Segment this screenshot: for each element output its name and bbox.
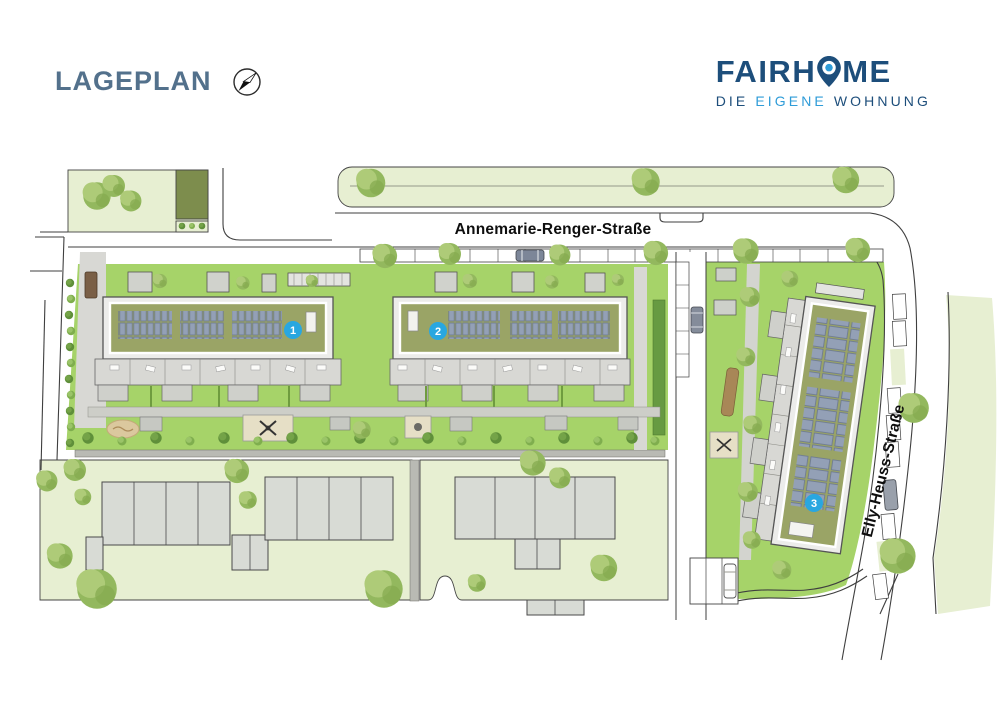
walkway	[88, 407, 660, 417]
brand-name: FAIRH ME	[716, 56, 931, 89]
building-2-number: 2	[435, 326, 441, 338]
building-1-number: 1	[290, 325, 296, 337]
parked-car-brown	[85, 272, 97, 298]
tagline-word-3: WOHNUNG	[834, 93, 931, 109]
shed	[207, 272, 229, 292]
solar-panels	[118, 311, 172, 339]
page: LAGEPLAN FAIRH ME DIE EIGENE WOHNUNG	[0, 0, 1000, 702]
seating-patio-2	[710, 432, 738, 458]
building-3-number: 3	[811, 498, 817, 510]
street-label-annemarie: Annemarie-Renger-Straße	[455, 221, 652, 238]
seating-patio	[243, 415, 293, 441]
building-3-badge[interactable]: 3	[805, 494, 823, 512]
header: LAGEPLAN	[55, 66, 262, 97]
building-1-badge[interactable]: 1	[284, 321, 302, 339]
shed	[128, 272, 152, 292]
solar-panels	[180, 311, 224, 339]
tagline-word-1: DIE	[716, 93, 749, 109]
brand-part1: FAIRH	[716, 56, 817, 89]
street-parking-row	[360, 249, 883, 262]
compass-icon	[232, 67, 262, 97]
parked-car-white	[724, 564, 736, 598]
street-north-curb-west	[223, 168, 332, 240]
solar-panels	[510, 311, 552, 339]
skylight	[408, 311, 418, 331]
shed	[512, 272, 534, 292]
parked-car	[516, 250, 544, 261]
solar-panels	[809, 317, 861, 383]
solar-panels	[232, 311, 282, 339]
playground-sand	[107, 420, 139, 438]
brand-part2: ME	[842, 56, 892, 89]
solar-panels	[799, 387, 851, 453]
building-2-badge[interactable]: 2	[429, 322, 447, 340]
brand-tagline: DIE EIGENE WOHNUNG	[716, 93, 931, 109]
shed	[585, 273, 605, 292]
bus-bay	[660, 213, 703, 222]
location-pin-icon	[817, 56, 841, 87]
bike-rack	[288, 273, 350, 286]
shed	[262, 274, 276, 292]
page-title: LAGEPLAN	[55, 66, 212, 97]
shed	[435, 272, 457, 292]
skylight	[306, 312, 316, 332]
brand-logo: FAIRH ME DIE EIGENE WOHNUNG	[716, 56, 931, 109]
parked-car-vertical	[691, 307, 703, 333]
west-street-line2	[41, 300, 45, 470]
building-2-terraces	[390, 359, 630, 385]
building-1-terraces	[95, 359, 341, 385]
solar-panels	[558, 311, 610, 339]
garage-block	[690, 558, 738, 604]
solar-panels	[448, 311, 500, 339]
tagline-word-2: EIGENE	[755, 93, 827, 109]
